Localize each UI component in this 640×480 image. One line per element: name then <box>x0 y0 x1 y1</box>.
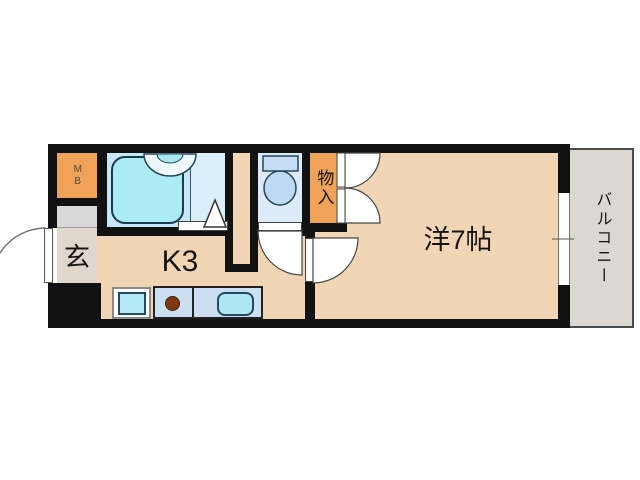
toilet-floor <box>258 153 302 227</box>
balcony-label: バルコニー <box>570 155 632 321</box>
closet-label: 物入 <box>310 156 337 220</box>
counter-divider <box>192 288 194 317</box>
stove-burner-icon <box>165 296 180 311</box>
room-door-leaf <box>305 238 315 282</box>
bathroom-doorway <box>178 221 228 231</box>
kitchen-sink <box>217 292 254 316</box>
bathtub <box>111 156 184 224</box>
western-room-label: 洋7帖 <box>398 222 518 258</box>
wall-block-bottom-left <box>48 283 101 328</box>
wall-closet-left <box>302 144 310 232</box>
entrance-door <box>44 228 53 283</box>
meter-box-label: MB <box>57 156 97 196</box>
kitchen-label: K3 <box>135 244 225 280</box>
balcony-window <box>558 193 570 285</box>
wall-pipe-space-cap <box>225 264 258 272</box>
entrance-door-swing-arc <box>0 228 46 283</box>
entrance-label: 玄 <box>57 238 97 278</box>
floor-plan: MB 玄 K3 物入 洋7帖 バルコニー <box>0 0 640 480</box>
washer-space-inner <box>118 292 146 315</box>
wall-under-meter-box <box>48 198 97 206</box>
wall-pipe-space-left <box>225 144 233 272</box>
wall-pipe-space-right <box>250 144 258 272</box>
bathroom-floor-right-side <box>190 153 225 227</box>
pipe-space-floor <box>233 153 250 264</box>
wall-bath-left <box>97 144 107 236</box>
entrance-step <box>57 206 97 227</box>
toilet-doorway <box>258 222 302 231</box>
